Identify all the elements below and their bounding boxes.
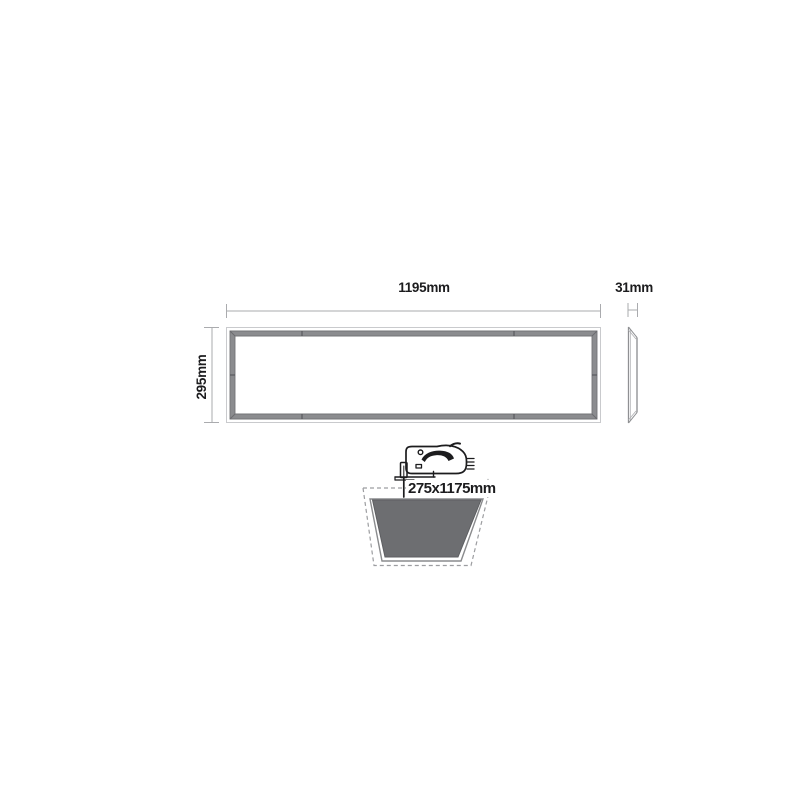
- side-depth-label: 31mm: [594, 280, 674, 295]
- cutout-size-label: 275x1175mm: [406, 480, 498, 497]
- width-dimension-line: [227, 304, 601, 318]
- front-width-label: 1195mm: [354, 280, 494, 295]
- panel-outer-edge: [227, 328, 601, 423]
- side-view: [629, 327, 638, 423]
- jigsaw-handle: [422, 451, 455, 462]
- front-height-label: 295mm: [194, 317, 210, 437]
- panel-dimension-diagram: 1195mm 31mm 295mm 275x1175mm: [0, 0, 800, 800]
- diagram-linework: [0, 0, 800, 800]
- front-view: [227, 328, 601, 423]
- depth-dimension-line: [628, 303, 638, 317]
